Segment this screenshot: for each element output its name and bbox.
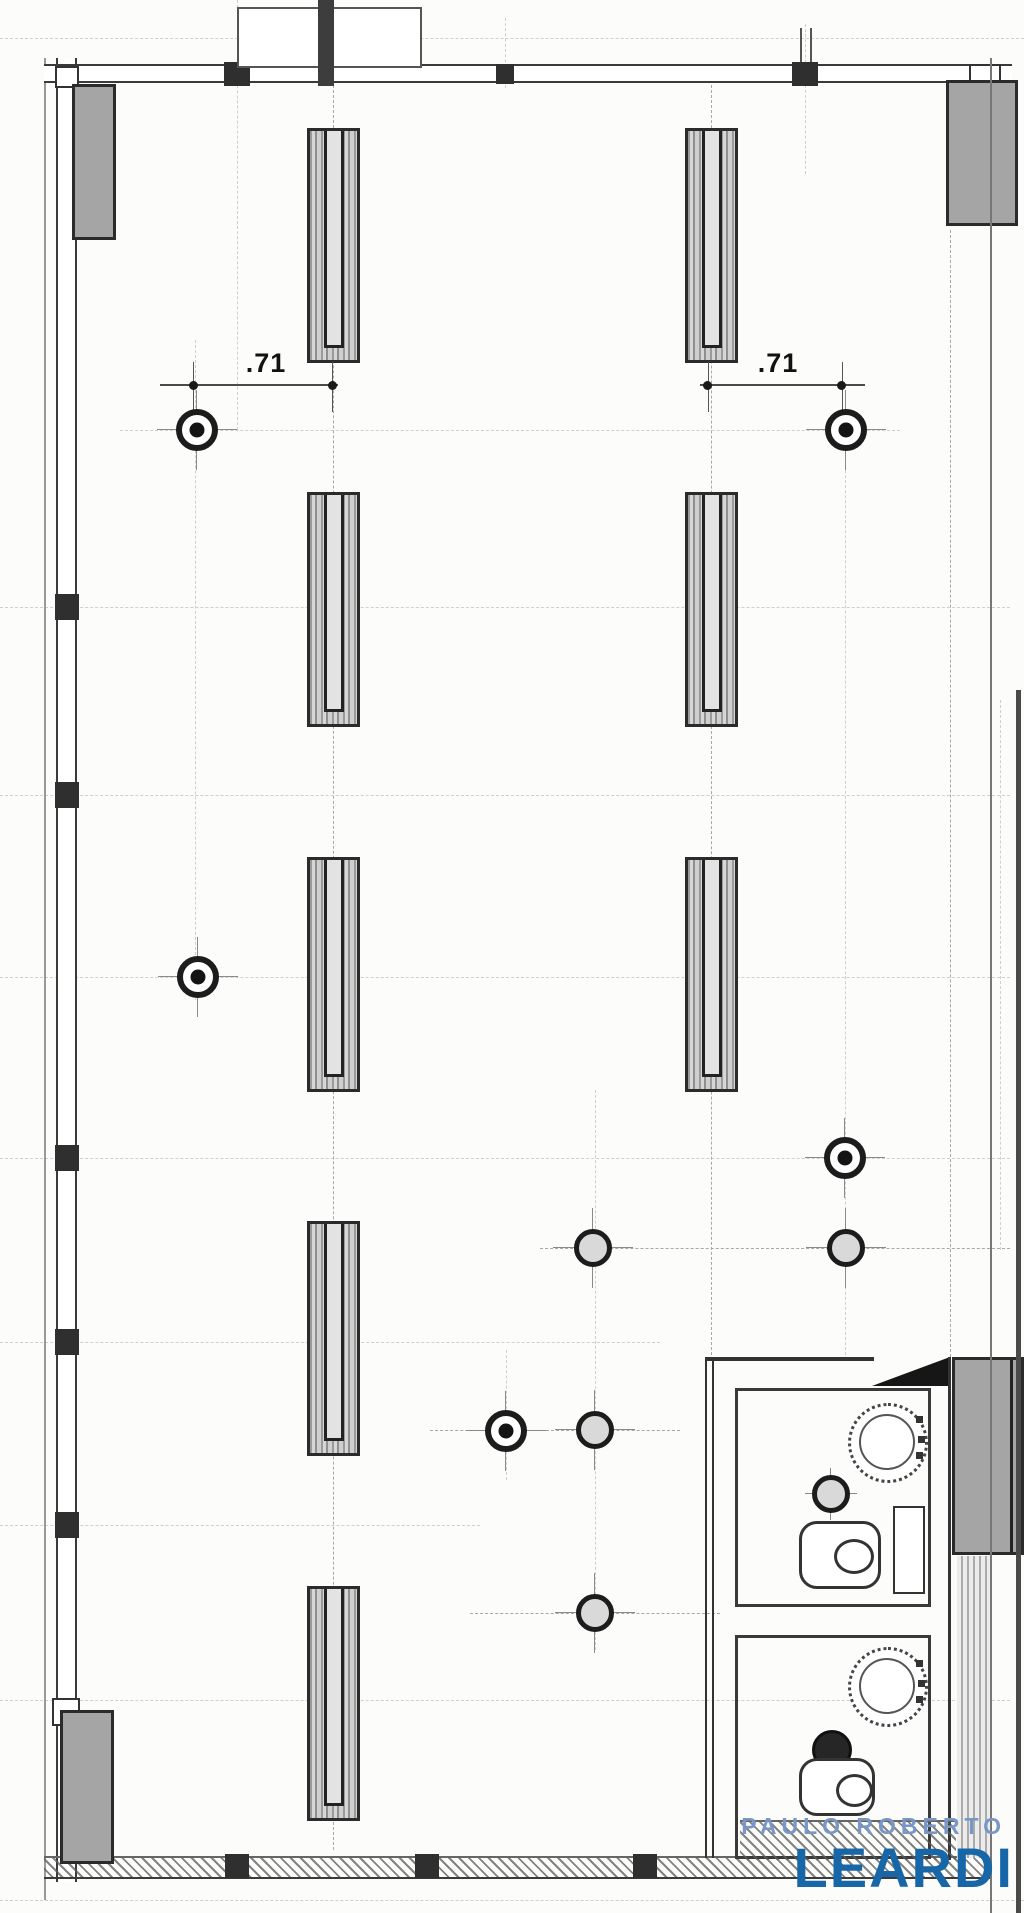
column-marker-crosshair: [555, 1573, 635, 1653]
marker-dot: [190, 423, 205, 438]
floor-plan: .71 .71: [0, 0, 1024, 1913]
wall-stud: [55, 1329, 79, 1355]
sink-tap: [918, 1680, 925, 1687]
pillar-edge-line: [1010, 1360, 1013, 1552]
structural-column: [685, 492, 738, 727]
structural-column: [685, 128, 738, 363]
marker-ring: [576, 1411, 614, 1449]
column-channel: [324, 131, 344, 348]
grid-line: [805, 24, 806, 174]
bathroom-wall-top: [705, 1357, 874, 1361]
wall-stud: [496, 64, 514, 84]
sink-basin: [859, 1414, 915, 1470]
right-boundary-line: [990, 58, 992, 1913]
toilet-bowl-inner: [836, 1774, 873, 1807]
column-channel: [324, 860, 344, 1077]
grid-line: [0, 977, 1010, 978]
sink-tap: [916, 1660, 923, 1667]
right-edge-band: [1016, 690, 1021, 1913]
sink-tap: [916, 1696, 923, 1703]
structural-column: [307, 1586, 360, 1821]
concrete-pillar: [60, 1710, 114, 1864]
column-channel: [324, 1589, 344, 1806]
wall-stud: [792, 62, 818, 86]
toilet-bowl-inner: [834, 1539, 874, 1574]
bathroom-wall-right: [948, 1357, 951, 1860]
wall-stud: [225, 1854, 249, 1878]
marker-dot: [838, 1151, 853, 1166]
wall-stud: [55, 1145, 79, 1171]
sink-tap: [916, 1416, 923, 1423]
column-channel: [702, 131, 722, 348]
dimension-label: .71: [743, 348, 813, 379]
sink-basin: [859, 1658, 915, 1714]
marker-dot: [499, 1424, 514, 1439]
grid-marker: [810, 28, 812, 62]
marker-ring: [827, 1229, 865, 1267]
dimension-label: .71: [231, 348, 301, 379]
column-marker-bullseye: [158, 937, 238, 1017]
grid-line: [0, 38, 1024, 39]
column-channel: [324, 495, 344, 712]
structural-column: [685, 857, 738, 1092]
column-marker-crosshair: [553, 1208, 633, 1288]
grid-line: [595, 1090, 596, 1650]
column-marker-crosshair: [806, 1208, 886, 1288]
grid-line: [950, 230, 951, 1357]
structural-column: [307, 1221, 360, 1456]
left-wall: [56, 58, 77, 1882]
column-marker-bullseye: [466, 1391, 546, 1471]
grid-line: [0, 1900, 1024, 1901]
concrete-pillar: [952, 1357, 1024, 1555]
sink-tap: [916, 1452, 923, 1459]
concrete-pillar: [72, 84, 116, 240]
grid-line: [0, 795, 1010, 796]
bathroom-wall-left: [712, 1357, 714, 1858]
grid-line: [0, 607, 1010, 608]
marker-ring: [574, 1229, 612, 1267]
wall-stud: [55, 1512, 79, 1538]
watermark-logo: LEARDI: [794, 1840, 1014, 1896]
grid-line: [1000, 700, 1001, 1250]
column-marker-crosshair: [555, 1390, 635, 1470]
dimension-endpoint: [328, 381, 337, 390]
concrete-pillar: [946, 80, 1018, 226]
dimension-endpoint: [703, 381, 712, 390]
structural-column: [307, 492, 360, 727]
sink-tap: [918, 1436, 925, 1443]
shaft-wall-segment: [318, 0, 334, 86]
wall-stud: [55, 594, 79, 620]
wall-stud: [633, 1854, 657, 1878]
marker-dot: [839, 423, 854, 438]
marker-ring: [576, 1594, 614, 1632]
wall-stud: [55, 782, 79, 808]
dimension-endpoint: [189, 381, 198, 390]
wall-fill-triangle: [872, 1357, 950, 1386]
wall-stud: [415, 1854, 439, 1878]
left-wall-outer-line: [44, 58, 46, 1900]
grid-line: [120, 430, 900, 431]
column-channel: [702, 495, 722, 712]
grid-marker: [800, 28, 802, 62]
dimension-line: [160, 384, 338, 386]
column-marker-bullseye: [805, 1118, 885, 1198]
toilet-cistern: [893, 1506, 925, 1594]
top-wall: [44, 64, 1012, 83]
column-channel: [702, 860, 722, 1077]
column-marker-bullseye: [806, 390, 886, 470]
marker-dot: [191, 970, 206, 985]
dimension-endpoint: [837, 381, 846, 390]
column-marker-bullseye: [157, 390, 237, 470]
structural-column: [307, 128, 360, 363]
column-channel: [324, 1224, 344, 1441]
structural-column: [307, 857, 360, 1092]
bathroom-wall-left: [705, 1357, 707, 1858]
